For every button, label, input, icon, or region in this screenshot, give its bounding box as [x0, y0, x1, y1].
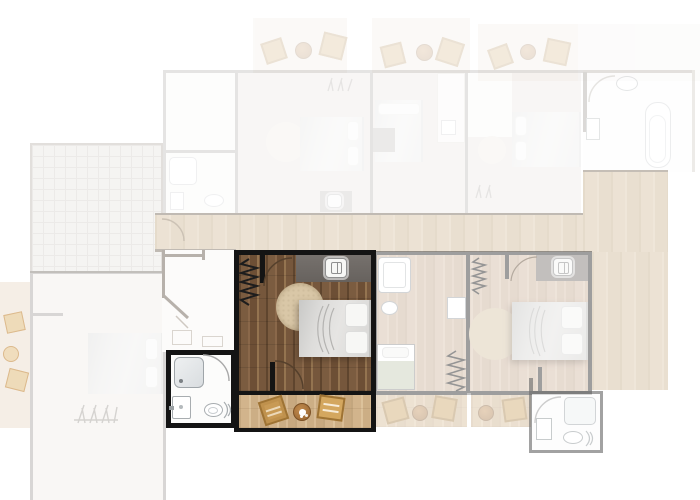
wall-stub — [529, 378, 533, 391]
terrace-table-icon — [293, 403, 311, 421]
basin-dot — [179, 405, 183, 409]
sink-icon — [536, 418, 552, 440]
terrace-side-table-icon — [316, 394, 345, 421]
washbasin-icon — [172, 396, 191, 419]
flower-icon — [299, 409, 306, 416]
pillow-icon — [345, 303, 368, 327]
double-bed-icon — [299, 300, 371, 357]
chair-slat — [267, 411, 282, 418]
door-arc-bottom — [275, 361, 303, 389]
floor-plan-canvas — [0, 0, 700, 500]
toilet-bowl — [208, 407, 218, 414]
selected-unit-hall[interactable] — [162, 250, 234, 352]
door-arc — [201, 355, 231, 385]
shower-icon — [174, 357, 204, 388]
toilet-tank — [222, 401, 232, 419]
shower-drain — [179, 379, 183, 383]
toilet-icon — [563, 431, 583, 444]
door-arc-top — [264, 258, 292, 286]
selected-unit-bathroom[interactable] — [166, 350, 236, 428]
bathroom-lower-right[interactable] — [529, 391, 603, 453]
radiator-icon — [240, 259, 258, 307]
hall-fixture — [172, 330, 192, 345]
wall — [202, 250, 205, 260]
tap — [169, 406, 174, 410]
table-slat — [323, 403, 339, 407]
hall-fixture — [202, 336, 223, 347]
wall — [162, 254, 204, 257]
table-slat — [323, 409, 339, 413]
toilet-icon — [204, 403, 223, 417]
pillow-icon — [345, 331, 368, 354]
diagonal-wall — [162, 294, 192, 334]
wall — [162, 250, 165, 298]
selected-unit-bedroom[interactable] — [234, 250, 376, 396]
bed-creases — [313, 302, 347, 355]
selected-unit-terrace[interactable] — [234, 395, 376, 432]
toilet-tank — [584, 430, 594, 447]
shower-icon — [564, 397, 596, 425]
